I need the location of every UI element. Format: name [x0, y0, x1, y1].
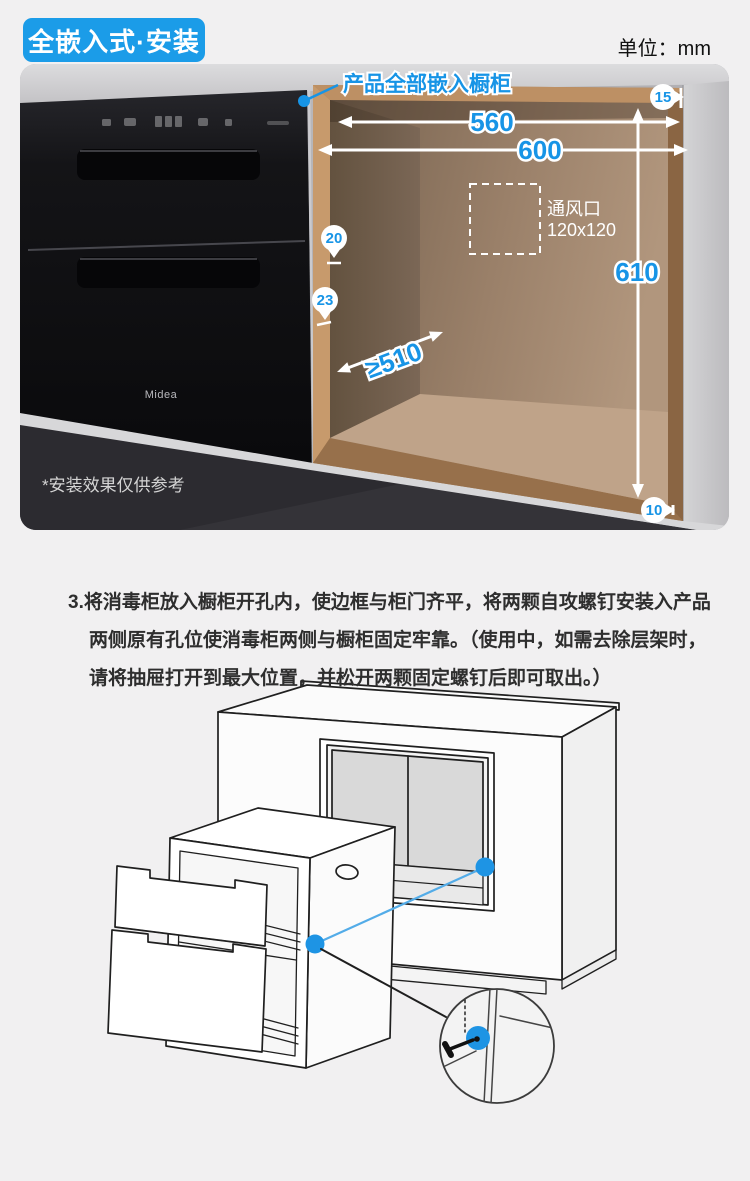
- section-title-badge: 全嵌入式·安装: [23, 18, 205, 62]
- installation-photo: Midea 通风口 120x120 560: [20, 64, 729, 530]
- dim-inner-width: 560: [470, 107, 513, 137]
- brand-logo: Midea: [145, 389, 178, 401]
- lower-drawer-handle: [77, 257, 260, 288]
- product-install-page: { "header": { "badge": "全嵌入式·安装", "unit"…: [0, 0, 750, 1181]
- screw-point-cabinet: [476, 858, 495, 877]
- instruction-line-1: 3.将消毒柜放入橱柜开孔内，使边框与柜门齐平，将两颗自攻螺钉安装入产品: [68, 584, 708, 622]
- drawer-fronts: [108, 866, 267, 1052]
- detail-zoom-circle: [440, 988, 554, 1104]
- unit-label: 单位：mm: [618, 32, 711, 61]
- instruction-line-3: 请将抽屉打开到最大位置，并松开两颗固定螺钉后即可取出。）: [89, 660, 708, 698]
- vent-size-label: 120x120: [547, 220, 616, 240]
- svg-text:10: 10: [646, 502, 663, 519]
- instruction-line-2: 两侧原有孔位使消毒柜两侧与橱柜固定牢靠。（使用中，如需去除层架时，: [89, 622, 708, 660]
- section-title: 全嵌入式·安装: [28, 22, 200, 59]
- disinfection-cabinet: Midea: [20, 90, 313, 463]
- installation-illustration: [100, 680, 660, 1163]
- svg-text:20: 20: [326, 230, 343, 247]
- svg-text:23: 23: [317, 292, 334, 309]
- line-drawing: [100, 680, 660, 1158]
- dim-height: 610: [615, 257, 658, 287]
- svg-text:15: 15: [655, 89, 672, 106]
- frame-left: [313, 85, 330, 463]
- disclaimer: *安装效果仅供参考: [42, 476, 185, 495]
- cabinet-side-panel: [683, 81, 729, 526]
- upper-drawer-handle: [77, 149, 260, 180]
- callout-label: 产品全部嵌入橱柜: [343, 72, 511, 96]
- installation-instructions: 3.将消毒柜放入橱柜开孔内，使边框与柜门齐平，将两颗自攻螺钉安装入产品 两侧原有…: [68, 584, 708, 698]
- dim-outer-width: 600: [518, 135, 561, 165]
- vent-label: 通风口: [547, 199, 601, 219]
- installation-diagram: Midea 通风口 120x120 560: [20, 64, 729, 530]
- screw-point-unit: [306, 935, 325, 954]
